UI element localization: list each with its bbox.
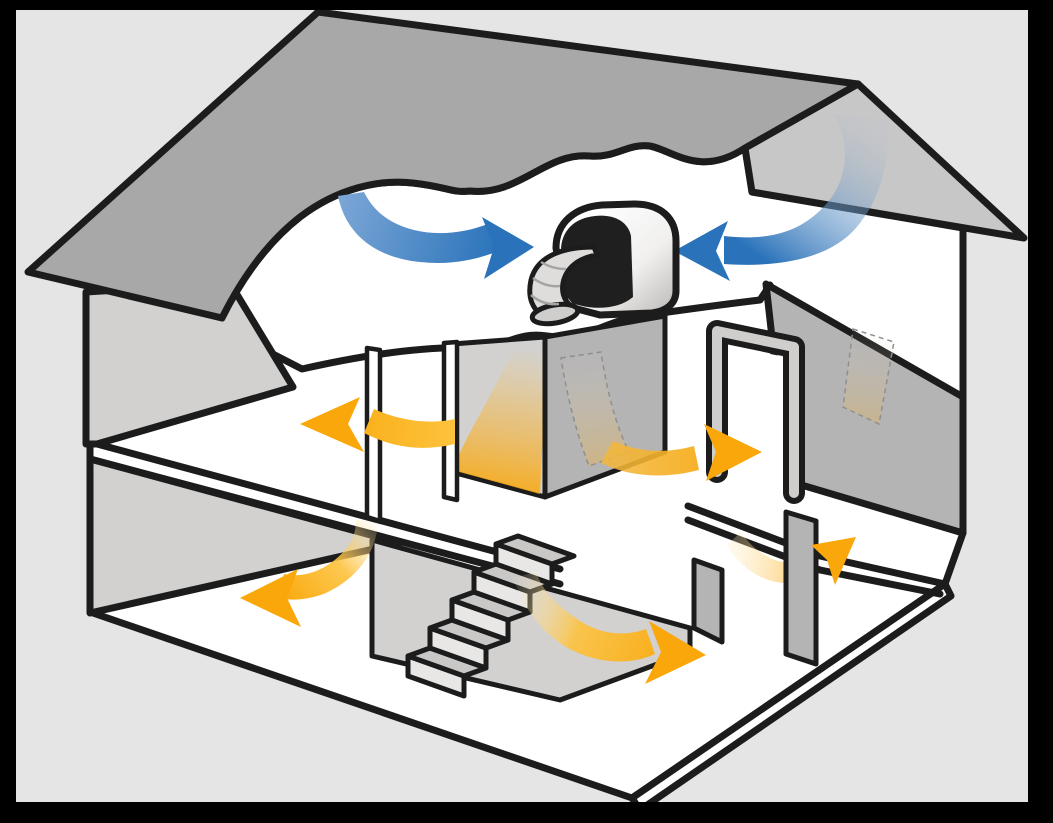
diagram-canvas [0, 0, 1053, 823]
right-doorway-wall-left-piece [694, 560, 722, 642]
right-doorway-post [786, 512, 816, 664]
diagram-frame [0, 0, 1053, 823]
